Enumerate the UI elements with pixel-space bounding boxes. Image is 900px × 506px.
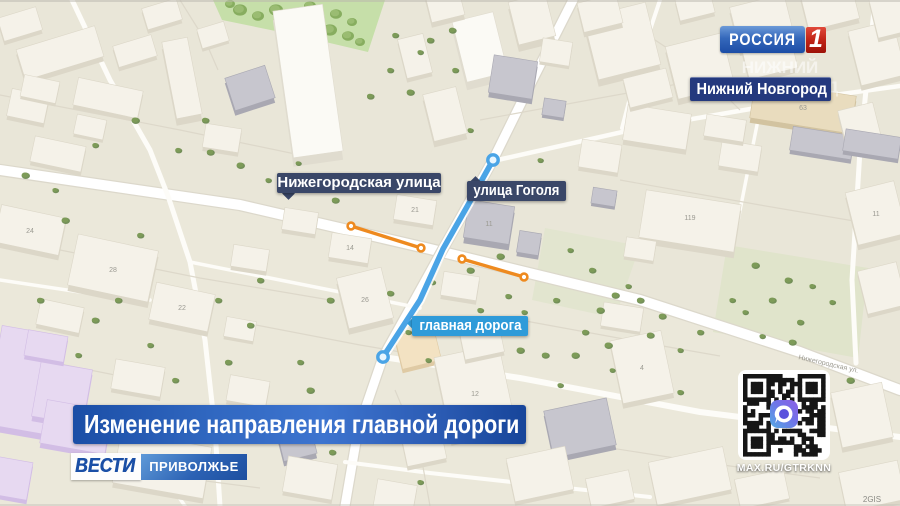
svg-text:11: 11 — [872, 211, 879, 218]
svg-text:26: 26 — [361, 297, 369, 304]
svg-text:63: 63 — [799, 105, 807, 112]
svg-text:4: 4 — [640, 365, 644, 372]
svg-text:28: 28 — [109, 267, 117, 274]
svg-text:НИЖНИЙ: НИЖНИЙ — [742, 58, 819, 77]
svg-text:12: 12 — [471, 391, 479, 398]
svg-text:14: 14 — [346, 245, 354, 252]
svg-text:2GIS: 2GIS — [863, 495, 881, 504]
svg-text:11: 11 — [485, 221, 492, 228]
svg-text:22: 22 — [178, 305, 186, 312]
svg-text:24: 24 — [26, 228, 34, 235]
svg-text:119: 119 — [684, 215, 695, 222]
svg-text:21: 21 — [411, 207, 419, 214]
